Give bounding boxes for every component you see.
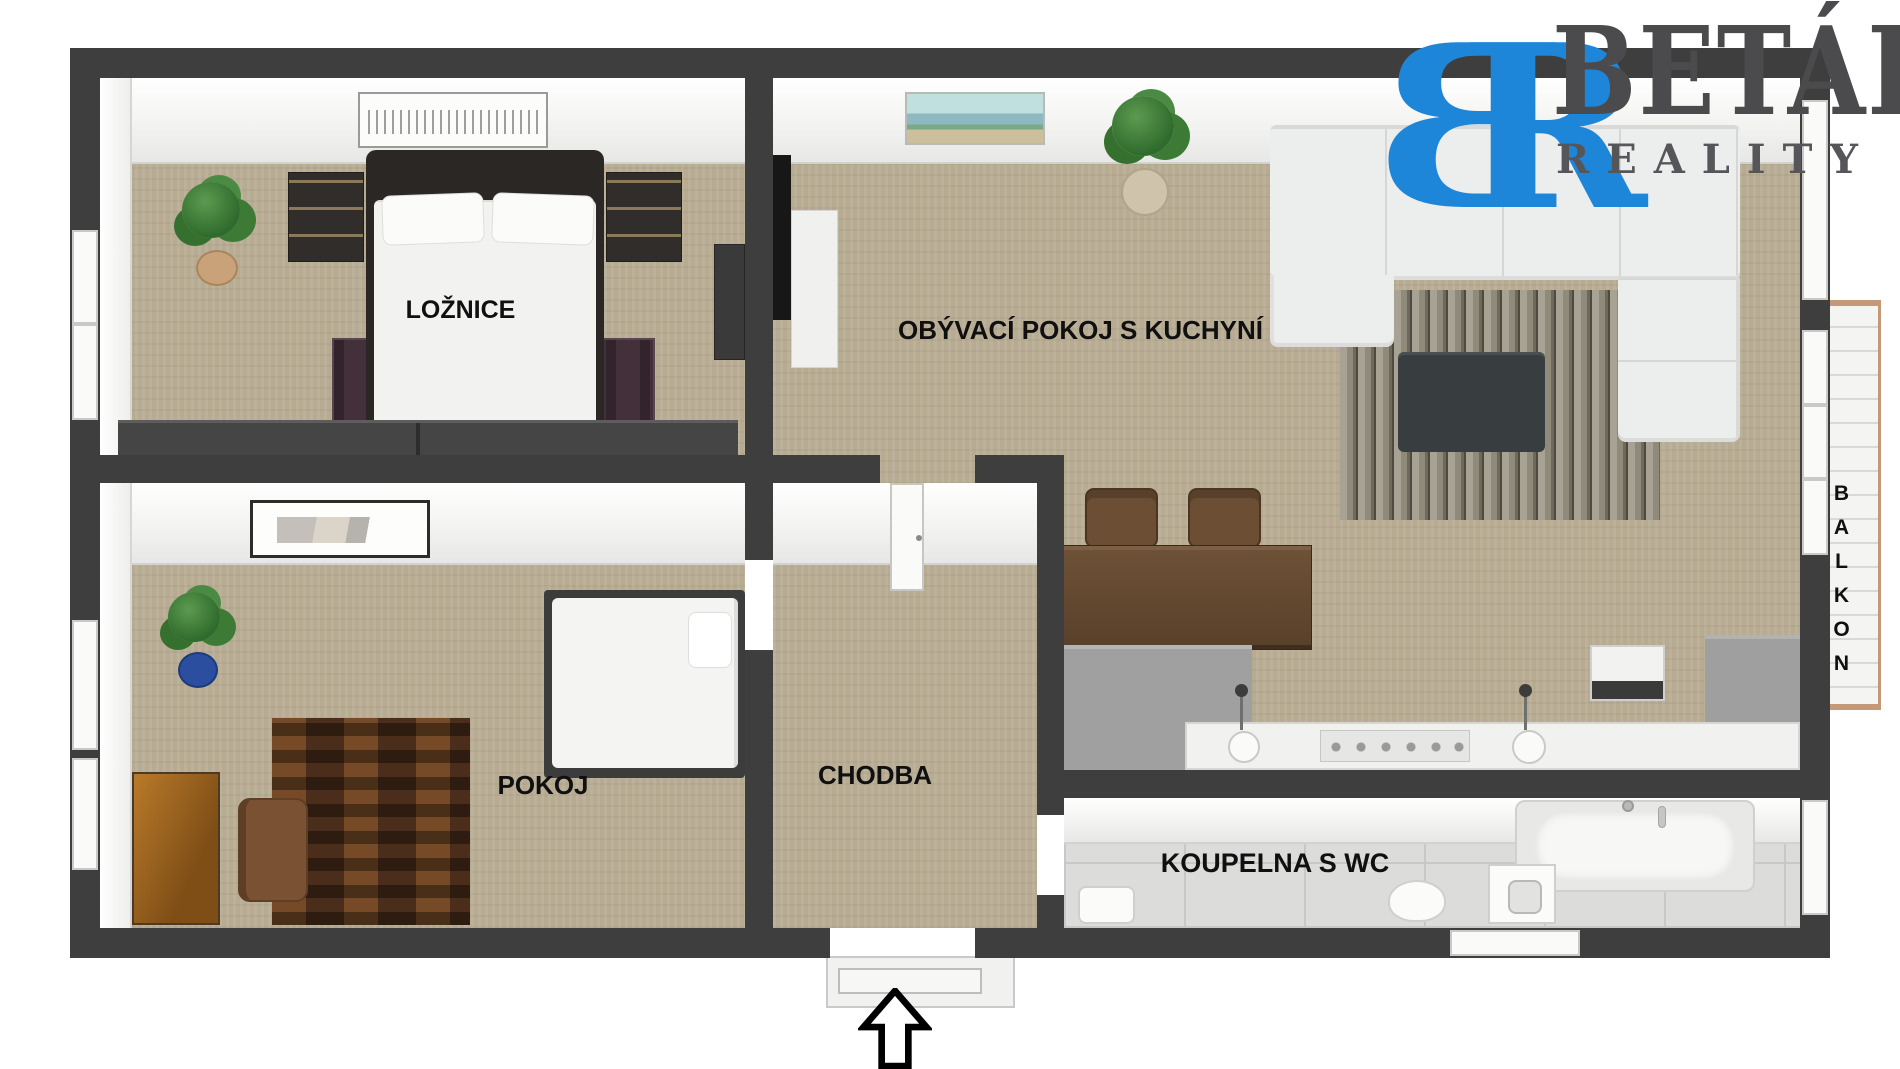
hallway-door-leaf [890, 483, 924, 591]
sofa-chaise-left [1270, 275, 1394, 347]
small-room-window-upper [72, 620, 98, 750]
living-tv [771, 155, 791, 320]
monogram-letter-b: B [1376, 16, 1567, 242]
balcony-trim-bottom [1830, 704, 1878, 710]
kitchen-cooktop [1320, 730, 1470, 762]
balcony-trim-top [1830, 300, 1878, 306]
bedroom-left-wall-face [100, 78, 132, 455]
wall-bedroom-living-upper [745, 48, 773, 560]
bar-table [1062, 545, 1312, 650]
wall-bedroom-room-left [70, 455, 880, 483]
bed-pillow-left [381, 192, 485, 246]
living-plant-foliage [1112, 96, 1174, 156]
bedroom-picture-art [368, 110, 538, 134]
small-room-wall-picture [250, 500, 430, 558]
kitchen-faucet-left [1240, 692, 1243, 730]
bathroom-label: KOUPELNA S WC [1155, 848, 1395, 879]
kitchen-microwave [1590, 645, 1665, 701]
hallway-label: CHODBA [800, 760, 950, 791]
desk-chair [238, 798, 308, 902]
kitchen-faucet-right-knob [1519, 684, 1532, 697]
bathtub-basin [1535, 812, 1735, 880]
entrance-arrow-up-icon [858, 988, 932, 1069]
living-plant-pot [1121, 168, 1169, 216]
small-room-plant-foliage [168, 592, 220, 642]
bedroom-sideboard [118, 420, 738, 455]
kitchen-sink-left [1228, 731, 1260, 763]
bedroom-tv-cabinet [714, 244, 745, 360]
small-room-plant-pot [178, 652, 218, 688]
living-wall-picture-seascape [905, 92, 1045, 145]
desk [132, 772, 220, 925]
brand-tagline: REALITY [1556, 136, 1875, 183]
kitchen-faucet-right [1524, 692, 1527, 730]
single-bed-pillow [688, 612, 732, 668]
living-kitchen-label: OBÝVACÍ POKOJ S KUCHYNÍ [898, 315, 1218, 346]
bathroom-window-right [1802, 800, 1828, 915]
bedroom-window [72, 230, 98, 420]
kitchen-sink-right [1512, 730, 1546, 764]
bed-pillow-right [491, 192, 595, 246]
bar-stool-2 [1188, 488, 1261, 548]
balcony-door [1802, 330, 1828, 555]
wall-room-hallway-lower [745, 650, 773, 928]
bathtub-shower-handle [1658, 806, 1666, 828]
bathroom-sink [1078, 886, 1135, 924]
bathtub-faucet [1622, 800, 1634, 812]
nightstand-right [606, 172, 682, 262]
small-room-label: POKOJ [458, 770, 628, 801]
small-room-picture-art [277, 517, 405, 543]
coffee-table [1398, 352, 1545, 452]
wall-hallway-bathroom-lower [1037, 895, 1064, 958]
wall-kitchen-bathroom [1037, 770, 1830, 798]
small-room-left-wall-face [100, 483, 132, 928]
kitchen-counter [1185, 722, 1800, 770]
kitchen-faucet-left-knob [1235, 684, 1248, 697]
wall-hallway-bathroom-upper [1037, 455, 1064, 815]
toilet [1388, 880, 1446, 922]
outer-wall-bottom-left [70, 928, 830, 958]
sofa-corner-right [1618, 278, 1740, 442]
balcony-label: BALKON [1829, 482, 1853, 692]
bedroom-plant-foliage [182, 182, 240, 238]
nightstand-left [288, 172, 364, 262]
bedroom-label: LOŽNICE [378, 296, 543, 325]
floorplan-canvas: LOŽNICE OBÝVACÍ POKOJ S KUCHYNÍ POKOJ CH… [0, 0, 1900, 1069]
small-room-window-lower [72, 758, 98, 870]
bedroom-plant-pot [196, 250, 238, 286]
washing-machine [1488, 864, 1556, 924]
bedroom-wall-picture [358, 92, 548, 148]
living-tv-cabinet [791, 210, 838, 368]
washing-machine-door [1508, 880, 1542, 914]
bar-stool-1 [1085, 488, 1158, 548]
outer-wall-bottom-right [975, 928, 1830, 958]
brand-name: BETÁK [1552, 8, 1900, 136]
bathroom-window-bottom [1450, 930, 1580, 956]
door-handle [916, 535, 922, 541]
